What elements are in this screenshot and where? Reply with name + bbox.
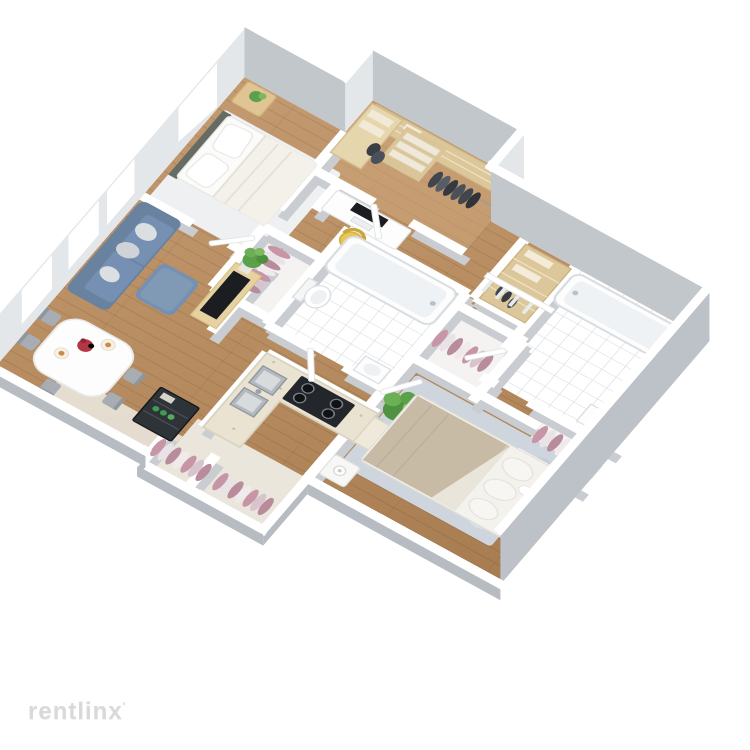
bathroom1-door bbox=[307, 348, 314, 381]
floor-plan-svg bbox=[0, 0, 750, 750]
watermark: rentlinxʹ bbox=[28, 698, 126, 726]
floor-plan-render: rentlinxʹ bbox=[0, 0, 750, 750]
watermark-text: rentlinx bbox=[28, 698, 123, 725]
watermark-mark: ʹ bbox=[123, 701, 127, 713]
